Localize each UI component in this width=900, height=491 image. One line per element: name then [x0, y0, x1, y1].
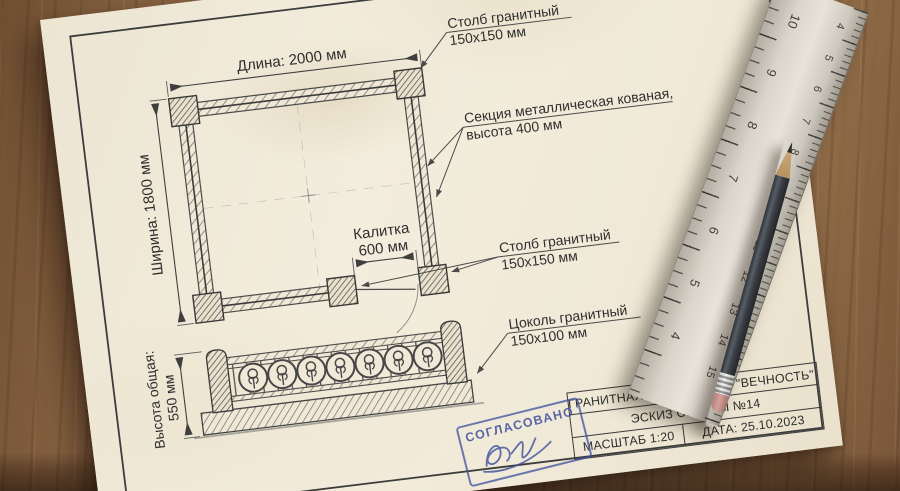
gate-swing: [356, 282, 423, 337]
ruler-cm-number: 6: [810, 84, 823, 94]
dim-width-label: Ширина: 1800 мм: [135, 153, 167, 276]
desk-scene: Длина: 2000 мм Ширина: 1800 мм Калитка 6…: [0, 0, 900, 491]
callout-labels: Столб гранитный 150x150 мм Секция металл…: [330, 0, 704, 386]
dim-length-label: Длина: 2000 мм: [236, 45, 348, 75]
ruler-inch-number: 8: [744, 120, 761, 132]
ruler-inch-number: 10: [784, 12, 803, 31]
ruler-inch-number: 6: [706, 225, 723, 237]
ruler-cm-number: 15: [703, 363, 718, 379]
ruler-inch-number: 5: [687, 277, 704, 289]
ruler-inch-number: 7: [725, 172, 742, 184]
ruler-inch-number: 4: [667, 330, 684, 342]
ruler-cm-number: 5: [822, 53, 835, 63]
elevation-view: Высота общая: 550 мм: [140, 311, 485, 450]
ruler-inch-number: 9: [763, 67, 780, 79]
plan-view: [169, 68, 454, 357]
ruler-cm-number: 4: [833, 21, 846, 31]
ruler-cm-number: 7: [799, 115, 812, 125]
